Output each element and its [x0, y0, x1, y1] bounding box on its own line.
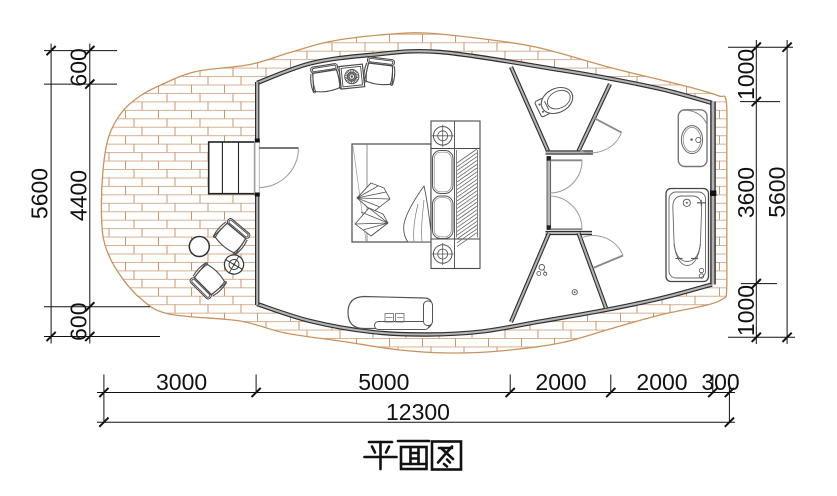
svg-text:3000: 3000	[156, 369, 207, 395]
svg-text:600: 600	[65, 303, 91, 341]
svg-text:3600: 3600	[733, 167, 759, 218]
svg-text:2000: 2000	[636, 369, 687, 395]
svg-text:1000: 1000	[733, 49, 759, 100]
svg-text:1000: 1000	[733, 285, 759, 336]
svg-text:5600: 5600	[764, 167, 790, 218]
svg-text:300: 300	[701, 369, 739, 395]
svg-text:600: 600	[65, 48, 91, 86]
svg-text:2000: 2000	[535, 369, 586, 395]
svg-text:5000: 5000	[358, 369, 409, 395]
svg-text:5600: 5600	[27, 168, 53, 219]
svg-text:4400: 4400	[65, 170, 91, 221]
svg-text:12300: 12300	[386, 399, 450, 425]
